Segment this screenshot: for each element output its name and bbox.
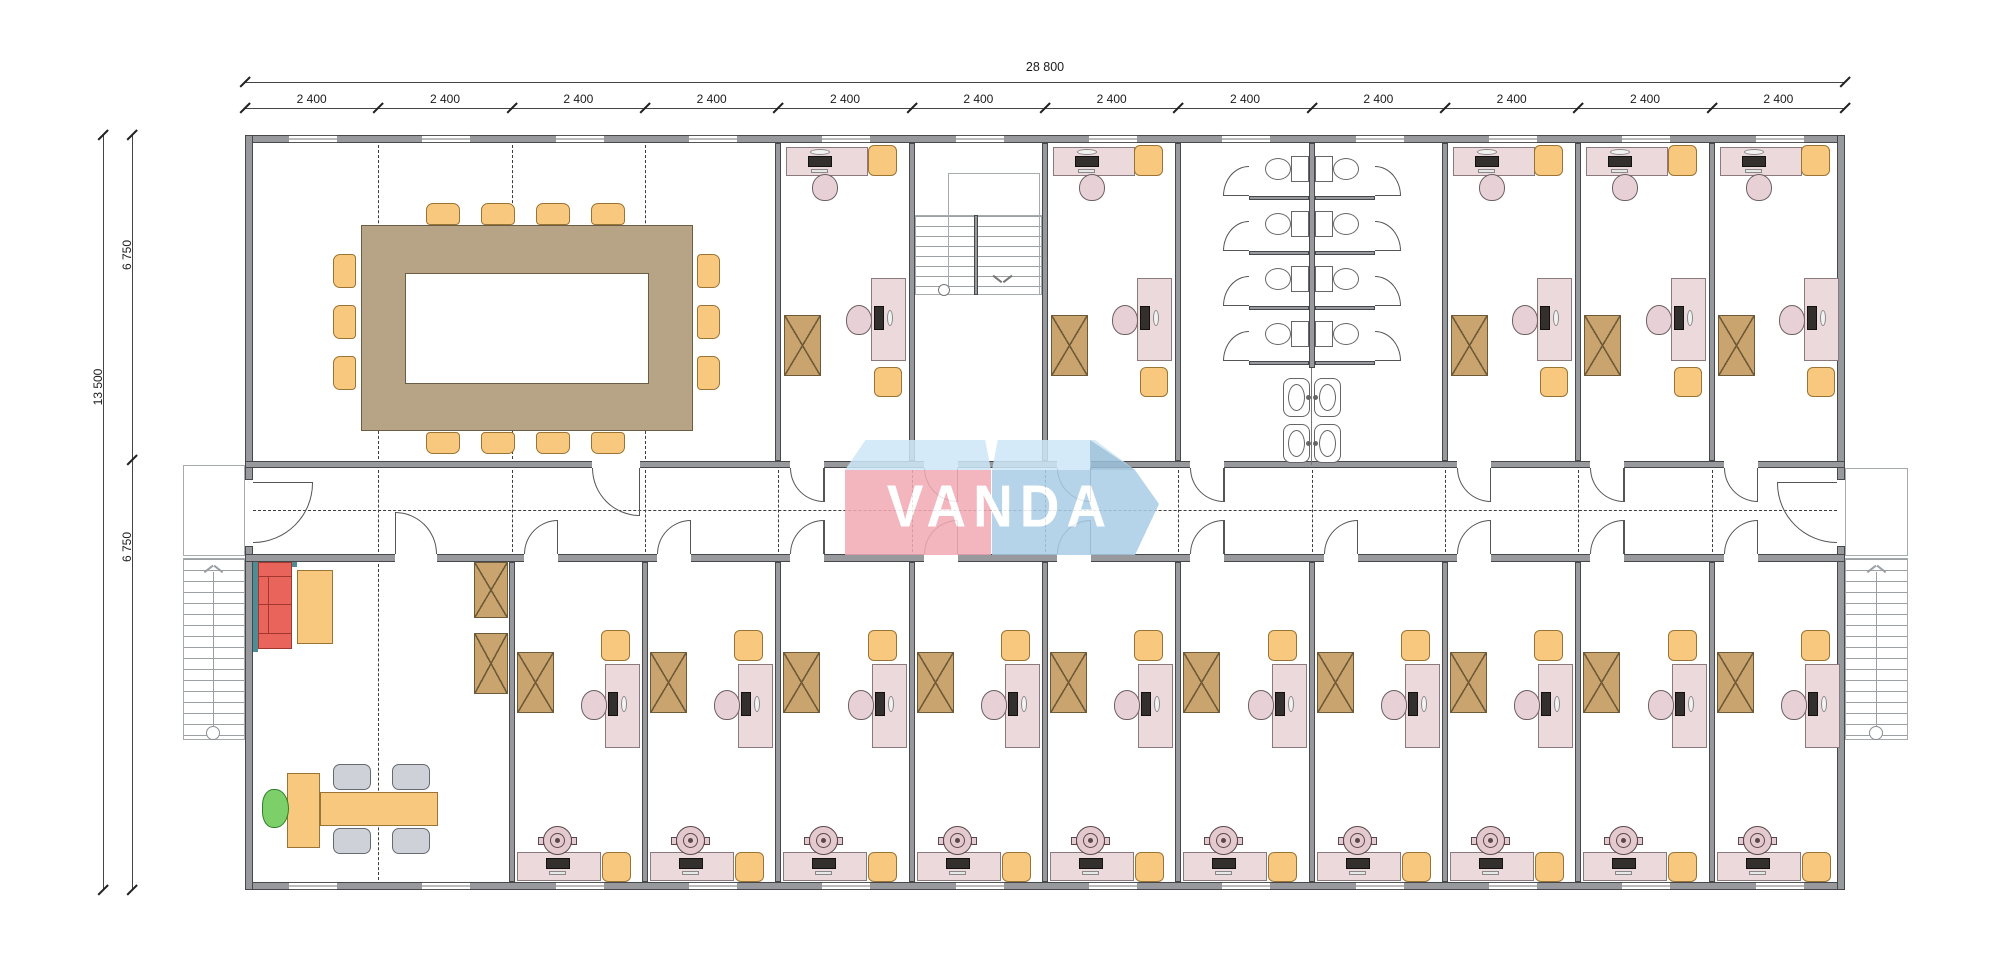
bay-dimension: 2 400 <box>1748 92 1808 106</box>
line <box>1223 360 1249 361</box>
office-chair <box>1268 852 1297 882</box>
toilet-tank <box>1291 211 1309 237</box>
monitor-icon <box>608 692 618 716</box>
window <box>689 882 737 890</box>
line <box>1623 520 1624 554</box>
wall <box>1249 251 1309 255</box>
task-chair <box>1648 690 1674 720</box>
wall <box>1249 306 1309 310</box>
toilet-bowl <box>1333 158 1359 180</box>
desk-plate-icon <box>888 696 894 712</box>
monitor-icon <box>679 858 703 869</box>
door-opening <box>1590 554 1624 562</box>
task-chair <box>1781 690 1807 720</box>
monitor-icon <box>1475 156 1499 167</box>
task-chair <box>981 690 1007 720</box>
office-chair <box>735 852 764 882</box>
task-chair <box>1514 690 1540 720</box>
door-opening <box>1590 461 1624 468</box>
wall <box>1175 143 1181 461</box>
office-chair <box>1401 630 1430 661</box>
vanda-logo-watermark: VANDA <box>840 432 1170 562</box>
keyboard-icon <box>1482 871 1499 875</box>
door-opening <box>657 554 691 562</box>
wardrobe-cabinet <box>474 633 508 694</box>
window <box>1222 135 1270 143</box>
bay-dimension: 2 400 <box>948 92 1008 106</box>
desk-plate-icon <box>1021 696 1027 712</box>
task-chair <box>1079 174 1105 201</box>
wall <box>1709 143 1715 461</box>
bay-dimension: 2 400 <box>1482 92 1542 106</box>
visitor-chair <box>333 764 371 790</box>
office-chair <box>1134 145 1163 176</box>
window <box>1622 135 1670 143</box>
meeting-table <box>320 792 438 826</box>
kettle-knob-icon <box>1755 838 1760 843</box>
conference-chair <box>697 305 720 339</box>
door-arc <box>1190 520 1224 554</box>
toilet-tank <box>1315 266 1333 292</box>
line <box>690 520 691 554</box>
monitor-icon <box>1675 692 1685 716</box>
window <box>289 135 337 143</box>
task-chair <box>1512 305 1538 335</box>
door-opening <box>1457 554 1491 562</box>
door-opening <box>1190 461 1224 468</box>
office-chair <box>602 852 631 882</box>
line <box>1311 368 1313 465</box>
window <box>1222 882 1270 890</box>
bay-dimension: 2 400 <box>815 92 875 106</box>
door-arc <box>1223 221 1249 251</box>
desk-plate-icon <box>1821 696 1827 712</box>
line <box>1223 520 1224 554</box>
wardrobe-cabinet <box>1450 652 1487 713</box>
door-arc <box>524 520 558 554</box>
wardrobe-cabinet <box>1583 652 1620 713</box>
door-opening <box>1724 554 1758 562</box>
floor-plan-canvas: 28 800 13 500 6 750 6 750 2 4002 4002 40… <box>0 0 2000 980</box>
grid-line <box>378 470 379 552</box>
line <box>1490 468 1491 502</box>
window <box>956 882 1004 890</box>
wall <box>1249 361 1309 365</box>
grid-line <box>378 564 379 880</box>
window <box>822 135 870 143</box>
tap-icon <box>1313 395 1318 400</box>
monitor-icon <box>1612 858 1636 869</box>
toilet-tank <box>1291 321 1309 347</box>
line <box>639 468 640 516</box>
office-chair <box>1540 367 1568 397</box>
wardrobe-cabinet <box>1183 652 1220 713</box>
door-arc <box>1724 520 1758 554</box>
line <box>259 604 291 605</box>
line <box>823 520 824 554</box>
office-chair <box>868 145 897 176</box>
toilet-bowl <box>1265 158 1291 180</box>
task-chair <box>1779 305 1805 335</box>
desk-plate-icon <box>1477 149 1497 155</box>
door-opening <box>1724 461 1758 468</box>
grid-line <box>1578 470 1579 552</box>
office-chair <box>1268 630 1297 661</box>
window <box>556 882 604 890</box>
bay-dimension: 2 400 <box>548 92 608 106</box>
monitor-icon <box>1674 306 1684 330</box>
wall <box>1709 562 1715 882</box>
line <box>1623 468 1624 502</box>
visitor-chair <box>392 828 430 854</box>
door-arc <box>1375 221 1401 251</box>
monitor-icon <box>741 692 751 716</box>
reception-desk <box>287 773 320 848</box>
office-chair <box>874 367 902 397</box>
door-opening <box>790 554 824 562</box>
keyboard-icon <box>1615 871 1632 875</box>
monitor-icon <box>812 858 836 869</box>
tap-icon <box>1313 441 1318 446</box>
task-chair <box>1479 174 1505 201</box>
door-arc <box>1324 520 1358 554</box>
task-chair <box>1612 174 1638 201</box>
desk-plate-icon <box>1820 310 1826 326</box>
logo-text: VANDA <box>840 471 1160 540</box>
wall <box>1175 562 1181 882</box>
office-chair <box>1668 145 1697 176</box>
keyboard-icon <box>815 871 832 875</box>
office-chair <box>1807 367 1835 397</box>
wall <box>245 135 253 480</box>
toilet-bowl <box>1333 268 1359 290</box>
task-chair <box>1112 305 1138 335</box>
conference-chair <box>333 305 356 339</box>
window <box>422 135 470 143</box>
wall <box>1442 562 1448 882</box>
office-chair <box>1001 630 1030 661</box>
stair-end-icon <box>206 726 220 740</box>
basin-bowl <box>1288 430 1305 457</box>
line <box>245 82 1845 83</box>
kettle-knob-icon <box>1488 838 1493 843</box>
window <box>556 135 604 143</box>
door-arc <box>395 512 437 554</box>
bay-dimension: 2 400 <box>1082 92 1142 106</box>
conference-chair <box>481 432 515 454</box>
keyboard-icon <box>1349 871 1366 875</box>
bay-dimension: 2 400 <box>682 92 742 106</box>
toilet-bowl <box>1265 323 1291 345</box>
bay-dimension: 2 400 <box>415 92 475 106</box>
line <box>1375 250 1401 251</box>
bay-dimension: 2 400 <box>1348 92 1408 106</box>
door-arc <box>253 483 313 543</box>
office-chair <box>1801 145 1830 176</box>
keyboard-icon <box>1215 871 1232 875</box>
office-chair <box>1674 367 1702 397</box>
wardrobe-cabinet <box>783 652 820 713</box>
wardrobe-cabinet <box>784 315 821 376</box>
monitor-icon <box>1808 692 1818 716</box>
office-chair <box>1535 852 1564 882</box>
monitor-icon <box>1541 692 1551 716</box>
keyboard-icon <box>1078 169 1095 173</box>
toilet-bowl <box>1333 323 1359 345</box>
monitor-icon <box>1608 156 1632 167</box>
window <box>1622 882 1670 890</box>
vestibule <box>183 465 245 556</box>
kettle-knob-icon <box>1355 838 1360 843</box>
kettle-handle-icon <box>837 837 843 845</box>
office-chair <box>1801 630 1830 661</box>
monitor-icon <box>946 858 970 869</box>
conference-chair <box>536 203 570 225</box>
desk-plate-icon <box>1688 696 1694 712</box>
line <box>268 577 269 633</box>
monitor-icon <box>1346 858 1370 869</box>
visitor-chair <box>333 828 371 854</box>
window <box>689 135 737 143</box>
vestibule <box>1845 468 1908 556</box>
conference-table-well <box>405 273 649 384</box>
office-chair <box>601 630 630 661</box>
line <box>1223 250 1249 251</box>
window <box>1356 135 1404 143</box>
toilet-tank <box>1315 156 1333 182</box>
window <box>956 135 1004 143</box>
bay-dimension: 2 400 <box>1215 92 1275 106</box>
wall <box>245 135 1845 143</box>
monitor-icon <box>1408 692 1418 716</box>
office-chair <box>1534 145 1563 176</box>
door-opening <box>524 554 558 562</box>
grid-line <box>1445 470 1446 552</box>
wall <box>1042 562 1048 882</box>
toilet-tank <box>1315 211 1333 237</box>
monitor-icon <box>546 858 570 869</box>
monitor-icon <box>1540 306 1550 330</box>
door-arc <box>657 520 691 554</box>
desk-plate-icon <box>887 310 893 326</box>
line <box>1375 195 1401 196</box>
visitor-chair <box>392 764 430 790</box>
wall <box>245 882 1845 890</box>
task-chair <box>1646 305 1672 335</box>
monitor-icon <box>875 692 885 716</box>
coffee-table <box>297 570 333 644</box>
logo-fold-corner <box>1090 440 1135 470</box>
monitor-icon <box>1008 692 1018 716</box>
line <box>1777 482 1837 483</box>
task-chair <box>581 690 607 720</box>
office-chair <box>1134 630 1163 661</box>
line <box>1375 360 1401 361</box>
desk-plate-icon <box>1288 696 1294 712</box>
stair-divider <box>974 215 978 295</box>
manager-chair <box>262 789 289 828</box>
task-chair <box>1746 174 1772 201</box>
keyboard-icon <box>1478 169 1495 173</box>
keyboard-icon <box>1745 169 1762 173</box>
monitor-icon <box>1275 692 1285 716</box>
office-chair <box>1402 852 1431 882</box>
monitor-icon <box>1479 858 1503 869</box>
line <box>395 512 396 554</box>
door-opening <box>395 554 437 562</box>
toilet-bowl <box>1265 213 1291 235</box>
toilet-tank <box>1291 266 1309 292</box>
task-chair <box>714 690 740 720</box>
line <box>823 468 824 502</box>
wall <box>1309 562 1315 882</box>
keyboard-icon <box>949 871 966 875</box>
monitor-icon <box>1140 306 1150 330</box>
wall <box>1442 143 1448 461</box>
line <box>1490 520 1491 554</box>
monitor-icon <box>808 156 832 167</box>
window <box>822 882 870 890</box>
wardrobe-cabinet <box>1451 315 1488 376</box>
grid-line <box>778 470 779 552</box>
door-arc <box>1375 276 1401 306</box>
line <box>1375 305 1401 306</box>
office-chair <box>868 852 897 882</box>
door-arc <box>1457 520 1491 554</box>
wall <box>1315 196 1375 200</box>
task-chair <box>846 305 872 335</box>
window <box>1356 882 1404 890</box>
line <box>1876 572 1877 734</box>
door-opening <box>245 480 253 546</box>
wardrobe-cabinet <box>1584 315 1621 376</box>
stair-end-icon <box>938 284 950 296</box>
keyboard-icon <box>811 169 828 173</box>
window <box>1756 135 1804 143</box>
wall <box>642 562 648 882</box>
desk-plate-icon <box>1687 310 1693 326</box>
office-chair <box>734 630 763 661</box>
line <box>259 633 291 634</box>
toilet-tank <box>1291 156 1309 182</box>
task-chair <box>812 174 838 201</box>
conference-chair <box>697 356 720 390</box>
task-chair <box>1248 690 1274 720</box>
grid-line <box>1312 470 1313 552</box>
office-chair <box>1140 367 1168 397</box>
kettle-knob-icon <box>955 838 960 843</box>
line <box>259 576 291 577</box>
door-arc <box>1724 468 1758 502</box>
window <box>1756 882 1804 890</box>
conference-chair <box>697 254 720 288</box>
conference-chair <box>481 203 515 225</box>
conference-chair <box>426 203 460 225</box>
line <box>1223 468 1224 502</box>
line <box>1357 520 1358 554</box>
office-chair <box>868 630 897 661</box>
tap-icon <box>1306 441 1311 446</box>
desk-plate-icon <box>1077 149 1097 155</box>
door-arc <box>1777 483 1837 543</box>
line <box>253 482 313 483</box>
stair-end-icon <box>1869 726 1883 740</box>
wall <box>509 562 515 882</box>
wall <box>909 562 915 882</box>
kettle-handle-icon <box>1237 837 1243 845</box>
door-arc <box>1457 468 1491 502</box>
desk-plate-icon <box>1744 149 1764 155</box>
basin-bowl <box>1319 430 1336 457</box>
keyboard-icon <box>682 871 699 875</box>
monitor-icon <box>1807 306 1817 330</box>
door-opening <box>1324 554 1358 562</box>
conference-chair <box>591 203 625 225</box>
door-arc <box>1223 276 1249 306</box>
wall <box>1575 143 1581 461</box>
conference-chair <box>591 432 625 454</box>
keyboard-icon <box>549 871 566 875</box>
wall <box>1315 361 1375 365</box>
task-chair <box>1114 690 1140 720</box>
wall <box>1315 306 1375 310</box>
grid-line <box>512 470 513 552</box>
wall <box>909 143 915 461</box>
task-chair <box>848 690 874 720</box>
monitor-icon <box>1079 858 1103 869</box>
window <box>1489 135 1537 143</box>
wall <box>1042 143 1048 461</box>
door-arc <box>1223 331 1249 361</box>
basin-bowl <box>1319 384 1336 411</box>
wardrobe-cabinet <box>1717 652 1754 713</box>
wardrobe-cabinet <box>1718 315 1755 376</box>
wall <box>1575 562 1581 882</box>
wardrobe-cabinet <box>474 562 508 618</box>
window <box>422 882 470 890</box>
toilet-bowl <box>1333 213 1359 235</box>
monitor-icon <box>1742 156 1766 167</box>
monitor-icon <box>1141 692 1151 716</box>
office-chair <box>1002 852 1031 882</box>
door-arc <box>1190 468 1224 502</box>
bay-dimension: 2 400 <box>1615 92 1675 106</box>
wardrobe-cabinet <box>1317 652 1354 713</box>
monitor-icon <box>1075 156 1099 167</box>
door-arc <box>1375 166 1401 196</box>
grid-line <box>1712 470 1713 552</box>
overall-width-dimension: 28 800 <box>980 60 1110 74</box>
desk-plate-icon <box>1421 696 1427 712</box>
door-arc <box>1590 468 1624 502</box>
door-opening <box>1837 480 1845 546</box>
window <box>1089 135 1137 143</box>
wall <box>775 143 781 461</box>
bay-dimension: 2 400 <box>282 92 342 106</box>
wall <box>245 546 253 890</box>
office-chair <box>1668 630 1697 661</box>
task-chair <box>1381 690 1407 720</box>
line <box>557 520 558 554</box>
office-chair <box>1802 852 1831 882</box>
line <box>1757 520 1758 554</box>
line <box>1757 468 1758 502</box>
grid-line <box>645 470 646 552</box>
keyboard-icon <box>1082 871 1099 875</box>
office-chair <box>1534 630 1563 661</box>
tap-icon <box>1306 395 1311 400</box>
keyboard-icon <box>1611 169 1628 173</box>
